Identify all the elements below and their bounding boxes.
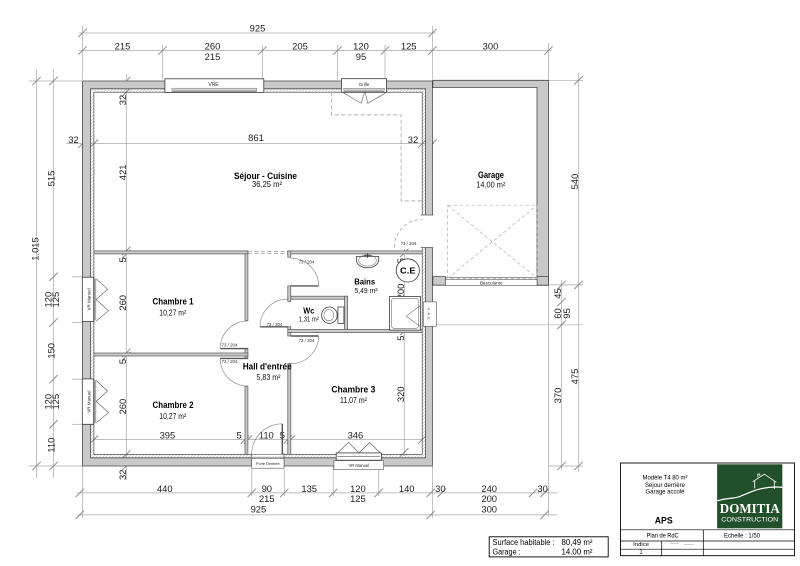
- svg-text:395: 395: [160, 430, 176, 441]
- svg-text:Echelle : 1/50: Echelle : 1/50: [724, 532, 761, 539]
- svg-text:320: 320: [395, 386, 406, 402]
- svg-text:14.00 m²: 14.00 m²: [562, 547, 593, 556]
- svg-text:5: 5: [117, 257, 128, 262]
- svg-text:95: 95: [561, 308, 572, 318]
- svg-text:VRE: VRE: [208, 82, 219, 88]
- svg-text:540: 540: [569, 174, 580, 190]
- svg-text:5,83 m²: 5,83 m²: [257, 373, 281, 382]
- svg-text:Grille: Grille: [359, 82, 370, 87]
- svg-text:370: 370: [552, 388, 563, 404]
- svg-text:73 / 204: 73 / 204: [299, 338, 315, 343]
- svg-text:5: 5: [117, 359, 128, 364]
- svg-text:Chambre 1: Chambre 1: [153, 297, 194, 307]
- svg-text:260: 260: [117, 399, 128, 415]
- svg-text:APS: APS: [655, 515, 673, 525]
- svg-text:215: 215: [205, 51, 221, 62]
- svg-text:73 / 204: 73 / 204: [222, 359, 238, 364]
- svg-text:125: 125: [350, 493, 366, 504]
- svg-text:Chambre 3: Chambre 3: [331, 385, 375, 395]
- svg-text:30: 30: [435, 483, 445, 494]
- svg-text:Plan de RdC: Plan de RdC: [647, 532, 679, 539]
- svg-text:73 / 204: 73 / 204: [401, 241, 417, 246]
- svg-text:215: 215: [115, 41, 131, 52]
- svg-text:135: 135: [301, 483, 317, 494]
- svg-text:120: 120: [353, 41, 369, 52]
- svg-text:36,25 m²: 36,25 m²: [252, 180, 282, 189]
- svg-text:215: 215: [259, 493, 275, 504]
- svg-text:95: 95: [356, 51, 366, 62]
- svg-text:V.A.E: V.A.E: [427, 308, 431, 320]
- svg-text:925: 925: [251, 504, 267, 515]
- svg-text:861: 861: [248, 132, 264, 143]
- svg-text:VR Manuel: VR Manuel: [86, 390, 91, 412]
- svg-text:125: 125: [50, 292, 61, 308]
- svg-text:11,07 m²: 11,07 m²: [340, 396, 367, 405]
- svg-text:260: 260: [117, 295, 128, 311]
- svg-text:300: 300: [483, 41, 499, 52]
- svg-text:5: 5: [395, 336, 406, 341]
- svg-text:VR Manuel: VR Manuel: [86, 288, 91, 310]
- svg-text:80,49 m²: 80,49 m²: [562, 538, 593, 547]
- svg-text:110: 110: [259, 430, 274, 441]
- svg-text:Garage accolé: Garage accolé: [646, 489, 686, 496]
- svg-text:30: 30: [537, 483, 547, 494]
- svg-text:45: 45: [552, 288, 563, 298]
- svg-text:Bains: Bains: [354, 277, 375, 287]
- svg-text:Indice: Indice: [633, 542, 649, 548]
- svg-text:32: 32: [117, 470, 128, 480]
- svg-text:32: 32: [68, 134, 78, 145]
- svg-text:73 / 204: 73 / 204: [222, 342, 238, 347]
- svg-text:1.015: 1.015: [30, 237, 41, 260]
- svg-text:10,27 m²: 10,27 m²: [159, 308, 186, 317]
- svg-text:Surface habitable :: Surface habitable :: [493, 538, 555, 547]
- svg-text:Chambre 2: Chambre 2: [153, 400, 194, 410]
- svg-text:5,49 m²: 5,49 m²: [355, 286, 379, 295]
- svg-text:CONSTRUCTION: CONSTRUCTION: [721, 517, 778, 524]
- svg-text:Porte Dentrée: Porte Dentrée: [256, 462, 280, 466]
- svg-text:Modèle T4 80 m²: Modèle T4 80 m²: [643, 475, 688, 482]
- svg-text:205: 205: [292, 41, 308, 52]
- svg-text:346: 346: [348, 430, 364, 441]
- svg-text:475: 475: [569, 369, 580, 385]
- svg-text:150: 150: [46, 343, 57, 359]
- svg-text:421: 421: [117, 164, 128, 180]
- svg-text:200: 200: [481, 493, 497, 504]
- svg-text:300: 300: [481, 504, 497, 515]
- svg-text:73 / 204: 73 / 204: [299, 260, 315, 265]
- svg-text:Garage: Garage: [478, 170, 504, 180]
- svg-text:C.E: C.E: [400, 265, 416, 275]
- svg-text:32: 32: [117, 95, 128, 105]
- svg-text:32: 32: [408, 134, 418, 145]
- svg-text:515: 515: [46, 171, 57, 187]
- svg-text:125: 125: [50, 394, 61, 410]
- svg-text:Garage :: Garage :: [493, 547, 521, 556]
- svg-text:5: 5: [236, 430, 241, 441]
- svg-text:140: 140: [399, 483, 415, 494]
- svg-text:VR Manuel: VR Manuel: [348, 463, 369, 468]
- svg-text:260: 260: [205, 41, 221, 52]
- svg-text:14,00 m²: 14,00 m²: [476, 180, 505, 189]
- svg-text:10,27 m²: 10,27 m²: [159, 412, 186, 421]
- svg-text:Hall d'entrée: Hall d'entrée: [243, 361, 292, 371]
- svg-text:73 / 204: 73 / 204: [267, 322, 283, 327]
- svg-text:Basculante: Basculante: [480, 280, 503, 285]
- svg-text:440: 440: [157, 483, 173, 494]
- svg-text:DOMITIA: DOMITIA: [720, 502, 781, 517]
- svg-text:125: 125: [401, 41, 417, 52]
- svg-text:1,31 m²: 1,31 m²: [299, 315, 319, 324]
- svg-text:925: 925: [250, 22, 266, 33]
- svg-text:110: 110: [46, 438, 57, 453]
